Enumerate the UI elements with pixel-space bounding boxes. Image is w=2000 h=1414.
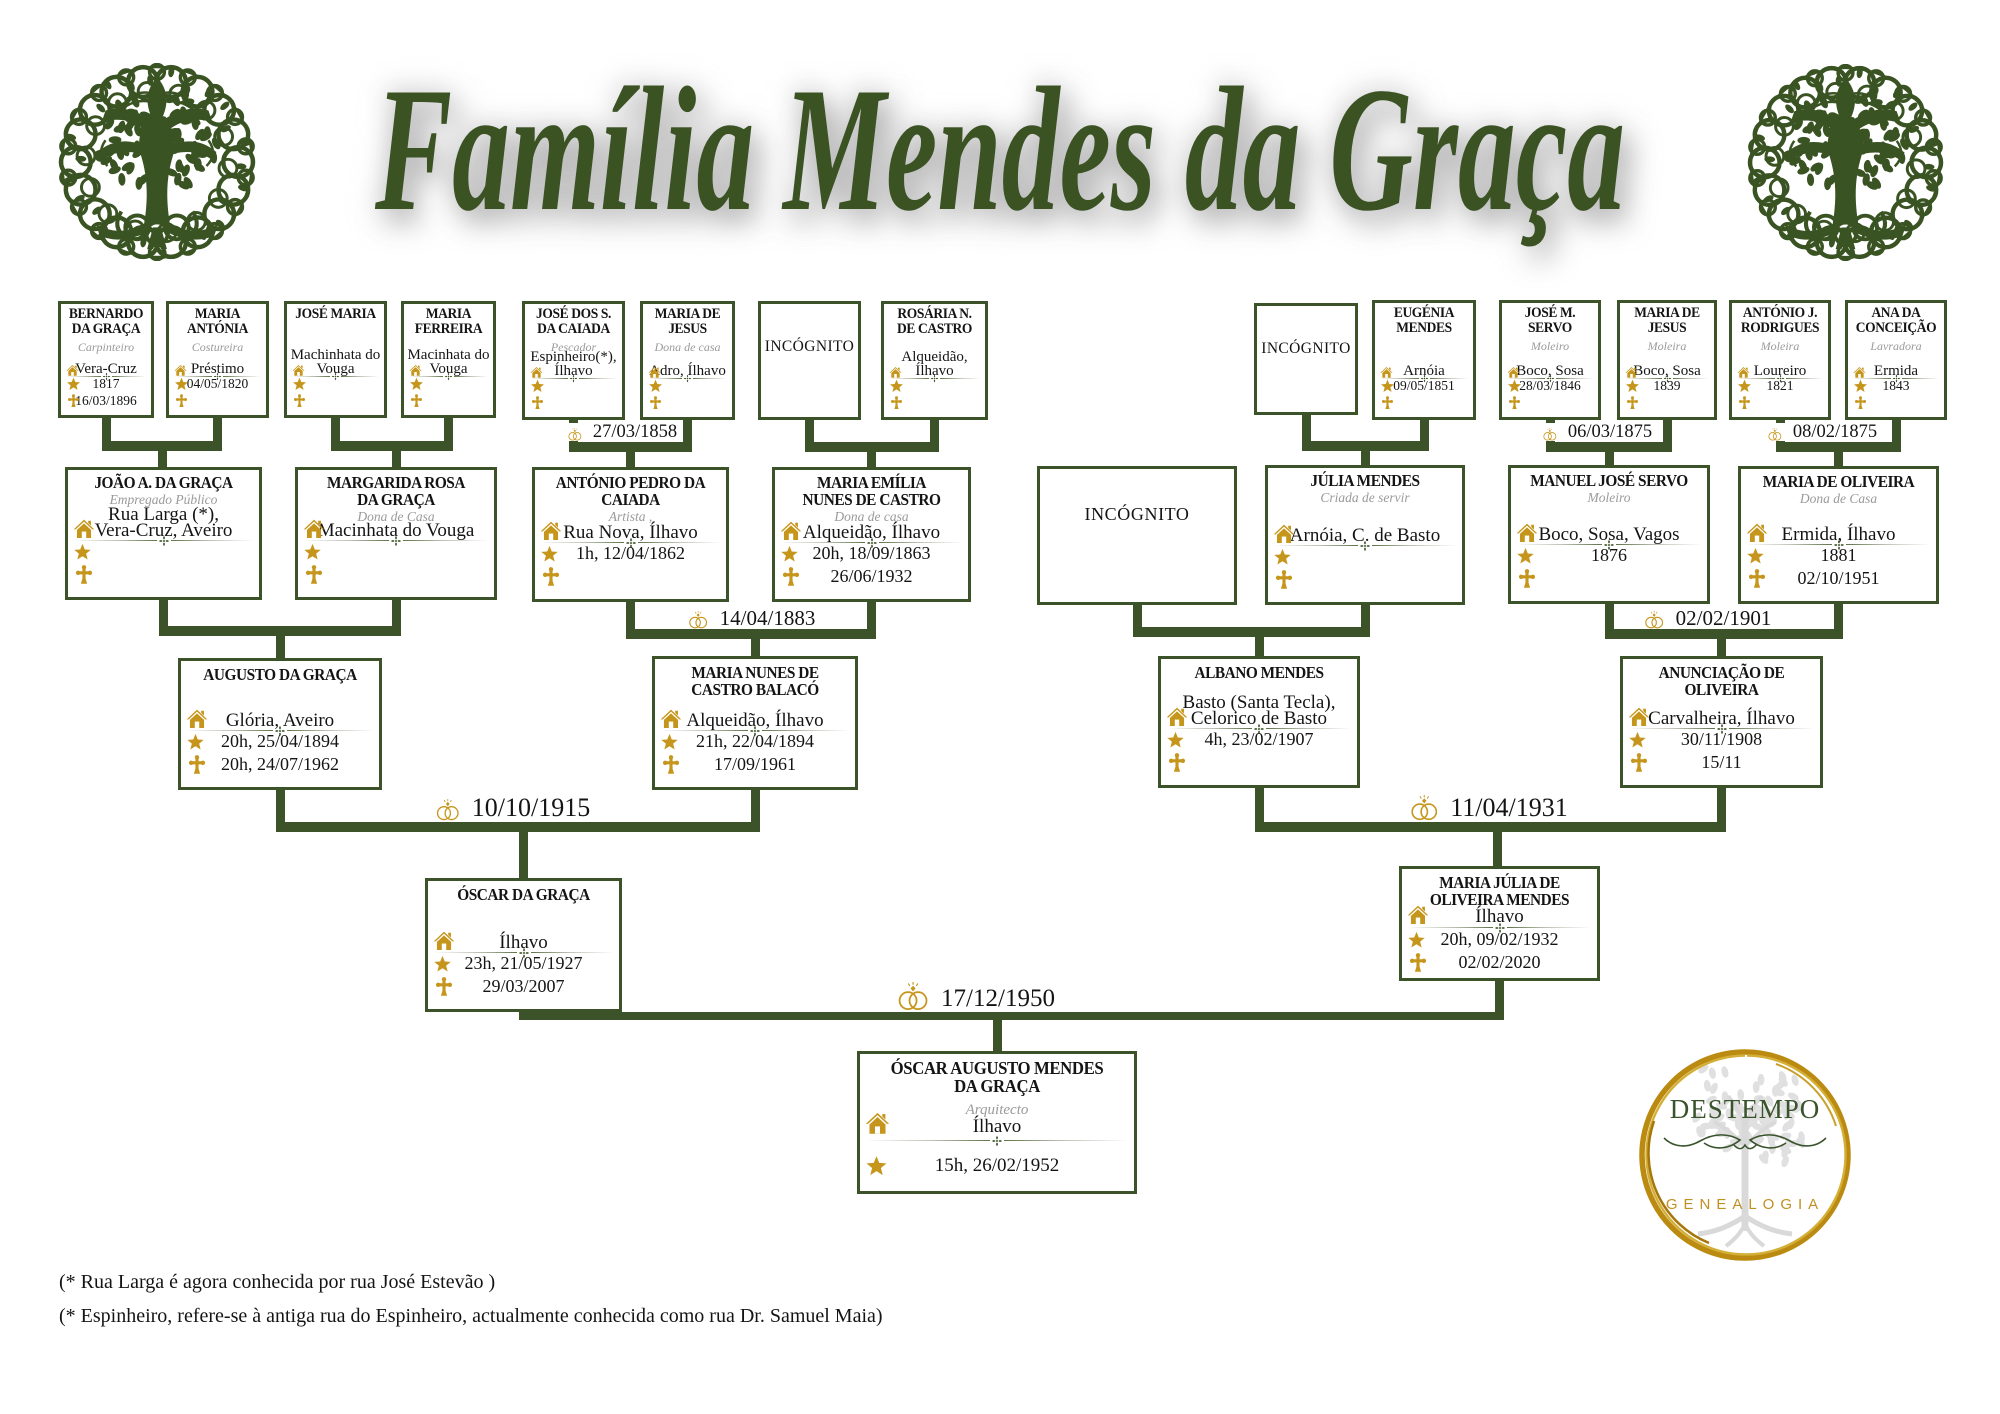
svg-text:DESTEMPO: DESTEMPO bbox=[1670, 1094, 1821, 1124]
svg-text:Família Mendes da Graça: Família Mendes da Graça bbox=[374, 50, 1625, 248]
svg-text:GENEALOGIA: GENEALOGIA bbox=[1666, 1196, 1824, 1213]
